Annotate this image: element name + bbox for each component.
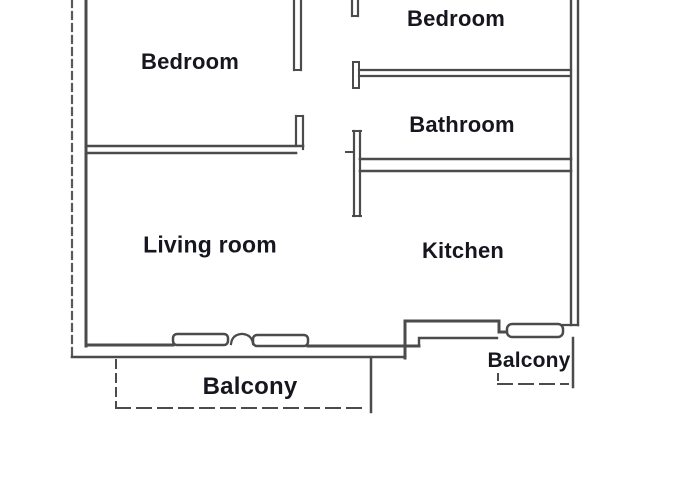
hallway-wall <box>346 0 361 216</box>
bedroom-left-bottom-wall <box>86 116 303 153</box>
living-room-window-right <box>253 335 308 346</box>
room-label-living-room: Living room <box>143 232 277 259</box>
room-label-balcony-right: Balcony <box>487 349 570 373</box>
balcony-door-icon <box>231 334 253 344</box>
kitchen-balcony-window <box>507 324 563 337</box>
floor-plan: Bedroom Bedroom Bathroom Living room Kit… <box>0 0 700 500</box>
outer-wall-right <box>563 0 578 325</box>
living-room-window-left <box>173 334 228 345</box>
outer-wall-left <box>72 0 86 357</box>
room-label-balcony-left: Balcony <box>203 373 298 401</box>
room-label-bathroom: Bathroom <box>409 112 515 138</box>
bedroom-bathroom-wall <box>359 70 571 76</box>
outer-wall-bottom <box>72 345 419 357</box>
floor-plan-walls <box>0 0 700 500</box>
room-label-bedroom-right: Bedroom <box>407 6 505 32</box>
bedroom-left-right-wall <box>294 0 301 70</box>
bathroom-kitchen-wall <box>360 159 571 171</box>
room-label-bedroom-left: Bedroom <box>141 49 239 75</box>
room-label-kitchen: Kitchen <box>422 238 504 264</box>
